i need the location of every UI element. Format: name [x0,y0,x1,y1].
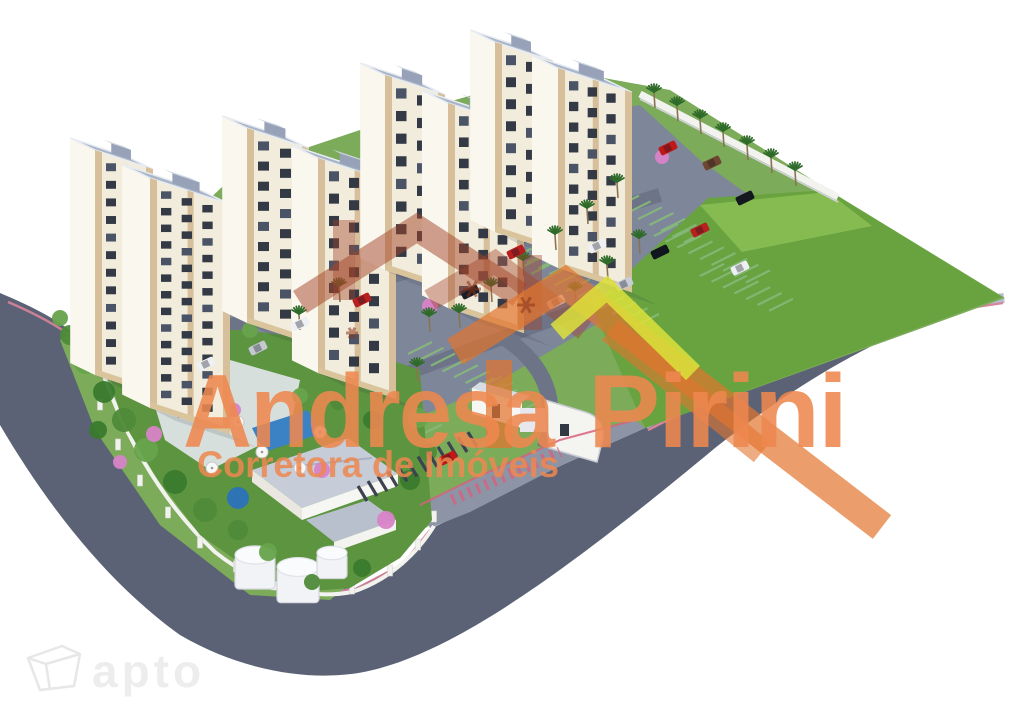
window [506,165,516,175]
tree [112,408,136,432]
window [329,171,339,181]
tree [89,421,107,439]
window [202,238,212,245]
window [606,155,615,164]
window [588,129,597,138]
window [588,87,597,96]
window [258,182,269,191]
palm-trunk [555,235,556,250]
palm-trunk [459,313,460,328]
window [280,269,291,278]
tower-side-face [70,138,95,375]
window [106,234,116,242]
window [349,200,359,210]
window [569,102,578,111]
window [569,205,578,214]
fence-post [432,511,437,522]
window [396,156,407,166]
window [606,93,615,102]
window [161,241,171,248]
window [396,134,407,144]
window [506,99,516,109]
tank-top [317,546,347,560]
window [258,202,269,211]
palm-trunk [429,317,430,332]
window [506,55,516,65]
watermark-text: Andresa Pirini Corretora de Imóveis [183,354,846,485]
palm-trunk [639,239,640,254]
tower-side-face [422,90,448,308]
tree [228,520,248,540]
window [506,143,516,153]
window [106,163,116,171]
flowering-tree [113,455,127,469]
window [106,181,116,189]
tree [93,381,115,403]
window [106,286,116,294]
window [280,189,291,198]
window [202,338,212,345]
window [182,281,192,288]
window [258,262,269,271]
window [161,291,171,298]
flowering-tree [146,426,162,442]
window [369,318,379,328]
window [258,141,269,150]
window [106,216,116,224]
window [459,180,469,190]
window [106,339,116,347]
window [280,169,291,178]
kids-pool [227,487,249,509]
window [606,114,615,123]
window [506,77,516,87]
window [329,305,339,315]
fence-post [138,475,143,486]
window [182,215,192,222]
window [588,191,597,200]
tower-side-face [470,30,495,232]
window [106,198,116,206]
tree [193,498,217,522]
window [202,288,212,295]
window [349,312,359,322]
window [106,322,116,330]
window [161,258,171,265]
window [182,314,192,321]
window [349,178,359,188]
window [606,197,615,206]
fence-post [388,565,393,576]
window [182,265,192,272]
window [161,324,171,331]
window [258,282,269,291]
window [588,232,597,241]
window [396,88,407,98]
window [588,108,597,117]
window [106,251,116,259]
watermark-brand-word-2: Pirini [588,354,846,470]
window [280,209,291,218]
window [329,194,339,204]
palm-trunk [587,209,588,224]
window [106,357,116,365]
window [161,274,171,281]
window [459,116,469,126]
window [280,149,291,158]
site-render: Andresa Pirini Corretora de Imóveis apto [0,0,1024,701]
window [396,201,407,211]
window [258,242,269,251]
render-stage: Andresa Pirini Corretora de Imóveis apto [0,0,1024,701]
window [478,229,488,239]
window [588,170,597,179]
window [369,274,379,284]
window [396,179,407,189]
palm-trunk [677,106,678,121]
window [161,308,171,315]
tower-side-face [122,165,150,409]
window [161,341,171,348]
window [606,238,615,247]
window [606,217,615,226]
window [258,162,269,171]
palm-trunk [617,183,618,198]
tree [353,559,371,577]
window [202,321,212,328]
window [588,211,597,220]
fence-post [116,439,121,450]
palm-trunk [723,132,724,147]
tower-side-face [292,145,318,373]
window [182,331,192,338]
window [182,231,192,238]
window [369,341,379,351]
window [202,222,212,229]
window [569,247,578,256]
palm-trunk [795,171,796,186]
window [606,135,615,144]
window [569,164,578,173]
palm-trunk [771,158,772,173]
window [258,302,269,311]
window [329,328,339,338]
tower-side-face [532,55,558,268]
window [106,304,116,312]
apto-logo-text: apto [92,645,205,697]
window [588,253,597,262]
window [161,391,171,398]
tree [259,543,277,561]
window [569,81,578,90]
fence-post [198,537,203,548]
window [280,229,291,238]
palm-trunk [700,119,701,134]
window [569,143,578,152]
window [202,271,212,278]
palm-trunk [747,145,748,160]
window [506,209,516,219]
window [459,222,469,232]
window [569,185,578,194]
window [280,310,291,319]
window [161,357,171,364]
window [182,298,192,305]
window [182,198,192,205]
window [569,123,578,132]
tree [304,574,320,590]
watermark-tagline: Corretora de Imóveis [197,444,559,485]
tower-side-face [222,116,247,323]
window [182,248,192,255]
window [202,305,212,312]
window [588,149,597,158]
window [478,292,488,302]
window [202,205,212,212]
window [161,225,171,232]
window [280,289,291,298]
flowering-tree [377,511,395,529]
window [459,201,469,211]
window [459,137,469,147]
window [506,121,516,131]
window [459,159,469,169]
tank-top [277,558,319,577]
window [258,222,269,231]
window [280,249,291,258]
window [569,226,578,235]
window [161,208,171,215]
tree [52,310,68,326]
window [506,187,516,197]
window [106,269,116,277]
window [202,255,212,262]
logo-red-bar-1 [333,220,355,300]
window [161,374,171,381]
tree [163,470,187,494]
palm-trunk [654,93,655,108]
fence-post [166,507,171,518]
water-tank [317,546,347,578]
fence-post [416,539,421,550]
window [396,111,407,121]
window [161,191,171,198]
gatehouse-window [560,424,569,436]
